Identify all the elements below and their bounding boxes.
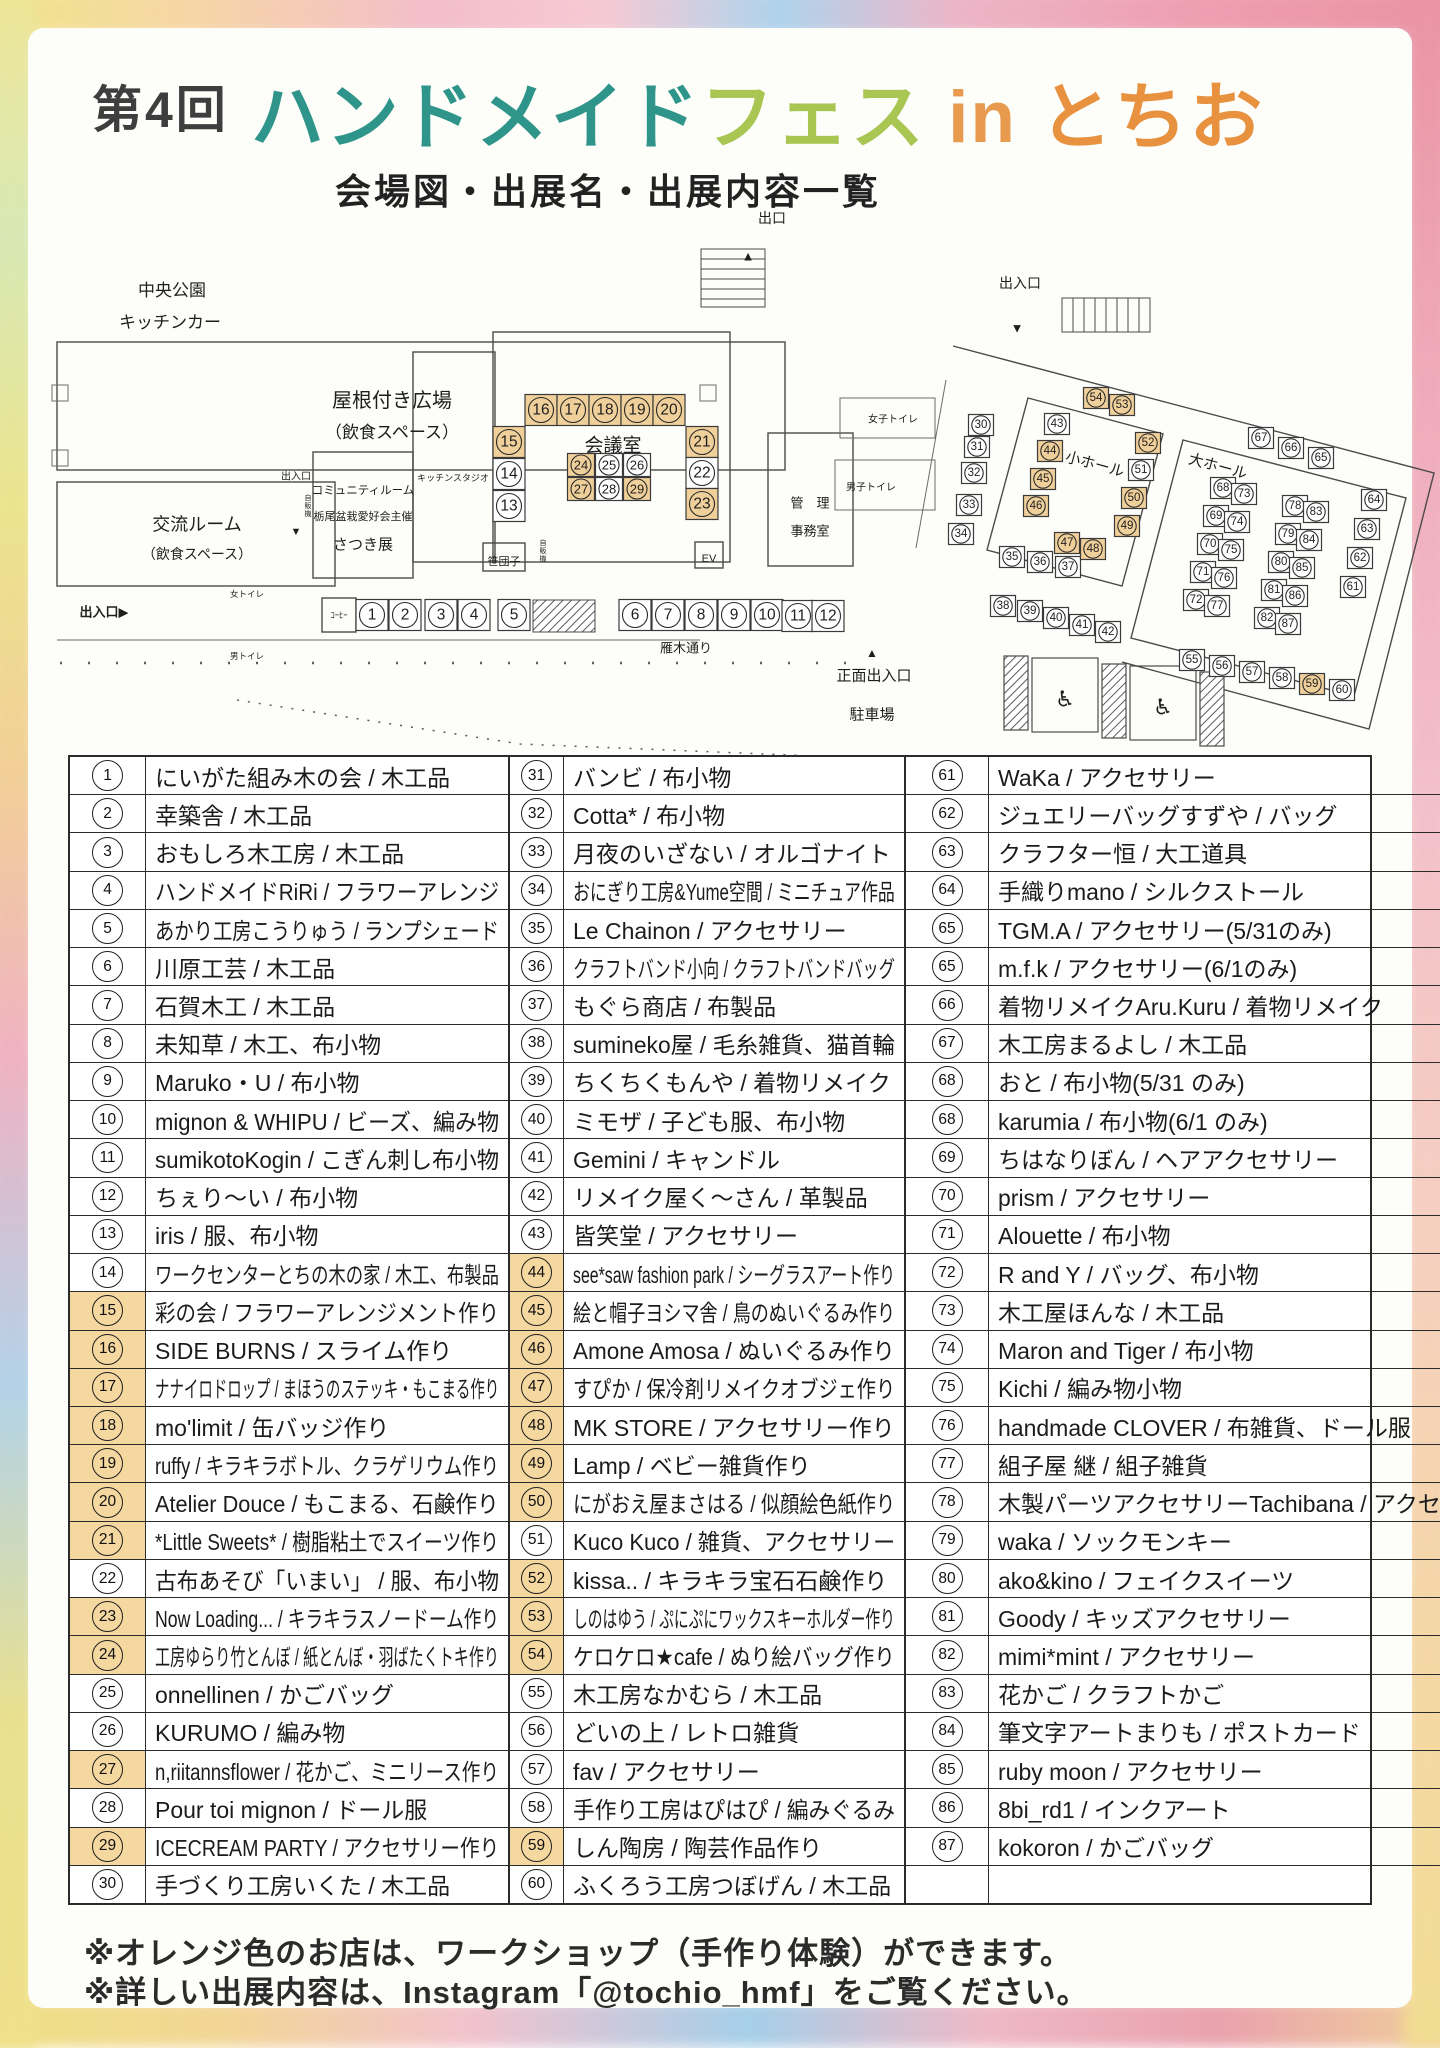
- booth-entry-text: 未知草 / 木工、布小物: [155, 1026, 381, 1060]
- booth-number-cell: 66: [906, 986, 989, 1023]
- booth-entry: MK STORE / アクセサリー作り: [564, 1407, 904, 1444]
- map-booth-7: 7: [652, 600, 684, 631]
- booth-number: 32: [521, 798, 552, 829]
- booth-entry: 工房ゆらり竹とんぼ / 紙とんぼ・羽ばたくトキ作り: [146, 1636, 508, 1673]
- booth-entry-text: Maron and Tiger / 布小物: [998, 1332, 1254, 1366]
- table-row: 74Maron and Tiger / 布小物: [906, 1330, 1440, 1368]
- svg-text:19: 19: [628, 402, 645, 419]
- booth-entry-text: sumikotoKogin / こぎん刺し布小物: [155, 1141, 499, 1175]
- map-label: ▲: [866, 646, 878, 660]
- booth-entry: しのはゆう / ぷにぷにワックスキーホルダー作り: [564, 1598, 904, 1635]
- booth-number-cell: 84: [906, 1713, 989, 1750]
- booth-number: 42: [521, 1181, 552, 1212]
- map-labels: 中央公園キッチンカー屋根付き広場（飲食スペース）交流ルーム（飲食スペース）出入口…: [80, 210, 1249, 723]
- booth-entry: prism / アクセサリー: [989, 1178, 1440, 1215]
- booth-entry-text: MK STORE / アクセサリー作り: [573, 1409, 895, 1443]
- table-row: 40ミモザ / 子ども服、布小物: [510, 1100, 904, 1138]
- booth-number: 48: [521, 1410, 552, 1441]
- svg-text:73: 73: [1238, 488, 1251, 500]
- svg-text:53: 53: [1116, 399, 1129, 411]
- booth-number: 87: [932, 1831, 963, 1862]
- map-booth-84: 84: [1297, 530, 1322, 551]
- booth-number-cell: [906, 1866, 989, 1903]
- booth-entry-text: 着物リメイクAru.Kuru / 着物リメイク: [998, 988, 1383, 1022]
- map-booth-1: 1: [356, 600, 388, 631]
- booth-entry: 手作り工房はぴはぴ / 編みぐるみ: [564, 1789, 904, 1826]
- table-row: 5あかり工房こうりゅう / ランプシェード: [70, 909, 508, 947]
- booth-entry: *Little Sweets* / 樹脂粘土でスイーツ作り: [146, 1522, 508, 1559]
- table-row: 29ICECREAM PARTY / アクセサリー作り: [70, 1827, 508, 1865]
- table-row: 62ジュエリーバッグすずや / バッグ: [906, 794, 1440, 832]
- table-row: 49Lamp / ベビー雑貨作り: [510, 1444, 904, 1482]
- booth-number: 64: [932, 875, 963, 906]
- table-row: 4ハンドメイドRiRi / フラワーアレンジ: [70, 871, 508, 909]
- booth-entry-text: ハンドメイドRiRi / フラワーアレンジ: [155, 873, 499, 907]
- table-row: 77組子屋 継 / 組子雑貨: [906, 1444, 1440, 1482]
- svg-text:30: 30: [975, 419, 988, 431]
- booth-number: 72: [932, 1257, 963, 1288]
- booth-number-cell: 53: [510, 1598, 564, 1635]
- booth-entry: おもしろ木工房 / 木工品: [146, 833, 508, 870]
- booth-entry-text: *Little Sweets* / 樹脂粘土でスイーツ作り: [155, 1523, 499, 1557]
- map-label: 男トイレ: [230, 651, 264, 661]
- booth-entry: 木製パーツアクセサリーTachibana / アクセサリー: [989, 1483, 1440, 1520]
- booth-entry-text: see*saw fashion park / シーグラスアート作り: [573, 1256, 895, 1290]
- booth-entry: m.f.k / アクセサリー(6/1のみ): [989, 948, 1440, 985]
- map-booth-62: 62: [1348, 548, 1373, 569]
- map-booth-39: 39: [1018, 601, 1043, 622]
- booth-number-cell: 49: [510, 1445, 564, 1482]
- map-booth-17: 17: [557, 395, 589, 426]
- booth-number: 57: [521, 1754, 552, 1785]
- svg-text:6: 6: [631, 607, 640, 624]
- booth-entry: すぴか / 保冷剤リメイクオブジェ作り: [564, 1369, 904, 1406]
- table-row: 1にいがた組み木の会 / 木工品: [70, 757, 508, 794]
- booth-number-cell: 44: [510, 1254, 564, 1291]
- booth-number: 34: [521, 875, 552, 906]
- table-row: 73木工屋ほんな / 木工品: [906, 1291, 1440, 1329]
- booth-number: 76: [932, 1410, 963, 1441]
- booth-entry-text: 組子屋 継 / 組子雑貨: [998, 1447, 1208, 1481]
- booth-entry: ruby moon / アクセサリー: [989, 1751, 1440, 1788]
- booth-entry: mignon & WHIPU / ビーズ、編み物: [146, 1101, 508, 1138]
- map-label: キッチンカー: [119, 313, 221, 332]
- booth-entry: [989, 1866, 1440, 1903]
- booth-number-cell: 58: [510, 1789, 564, 1826]
- booth-number-cell: 56: [510, 1713, 564, 1750]
- table-row: 87kokoron / かごバッグ: [906, 1827, 1440, 1865]
- svg-text:62: 62: [1354, 552, 1367, 564]
- map-label: さつき展: [333, 536, 393, 553]
- map-booth-16: 16: [525, 395, 557, 426]
- booth-entry: WaKa / アクセサリー: [989, 757, 1440, 794]
- booth-entry-text: ケロケロ★cafe / ぬり絵バッグ作り: [573, 1638, 895, 1672]
- booth-number-cell: 19: [70, 1445, 146, 1482]
- svg-text:43: 43: [1051, 418, 1064, 430]
- booth-number: 81: [932, 1601, 963, 1632]
- svg-text:7: 7: [664, 607, 673, 624]
- booth-entry-text: SIDE BURNS / スライム作り: [155, 1332, 452, 1366]
- booth-entry: Cotta* / 布小物: [564, 795, 904, 832]
- booth-entry-text: prism / アクセサリー: [998, 1179, 1210, 1213]
- booth-number-cell: 83: [906, 1675, 989, 1712]
- booth-entry-text: karumia / 布小物(6/1 のみ): [998, 1103, 1268, 1137]
- svg-text:8: 8: [697, 607, 706, 624]
- map-booth-61: 61: [1341, 577, 1366, 598]
- map-booth-63: 63: [1355, 519, 1380, 540]
- table-row: 67木工房まるよし / 木工品: [906, 1024, 1440, 1062]
- svg-text:37: 37: [1062, 561, 1075, 573]
- svg-text:55: 55: [1186, 654, 1199, 666]
- booth-number-cell: 29: [70, 1828, 146, 1865]
- booth-entry-text: ICECREAM PARTY / アクセサリー作り: [155, 1829, 499, 1863]
- map-label: 管 理: [790, 496, 829, 511]
- svg-text:4: 4: [470, 607, 479, 624]
- booth-number-cell: 33: [510, 833, 564, 870]
- table-row: 56どいの上 / レトロ雑貨: [510, 1712, 904, 1750]
- booth-number: 62: [932, 798, 963, 829]
- booth-number-cell: 80: [906, 1560, 989, 1597]
- map-booth-19: 19: [621, 395, 653, 426]
- table-row: 7石賀木工 / 木工品: [70, 985, 508, 1023]
- booth-number: 79: [932, 1525, 963, 1556]
- svg-text:66: 66: [1285, 442, 1298, 454]
- booth-number-cell: 17: [70, 1369, 146, 1406]
- map-booth-10: 10: [751, 600, 783, 631]
- table-row: 85ruby moon / アクセサリー: [906, 1750, 1440, 1788]
- booth-number-cell: 45: [510, 1292, 564, 1329]
- booth-entry: Alouette / 布小物: [989, 1216, 1440, 1253]
- booth-entry: karumia / 布小物(6/1 のみ): [989, 1101, 1440, 1138]
- svg-text:45: 45: [1037, 473, 1050, 485]
- booth-number: 8: [92, 1028, 123, 1059]
- booth-entry-text: fav / アクセサリー: [573, 1753, 760, 1787]
- booth-number-cell: 36: [510, 948, 564, 985]
- booth-entry-text: ワークセンターとちの木の家 / 木工、布製品: [155, 1256, 499, 1290]
- table-row: 50にがおえ屋まさはる / 似顔絵色紙作り: [510, 1482, 904, 1520]
- stairs-icon: [533, 600, 595, 632]
- booth-entry-text: kokoron / かごバッグ: [998, 1829, 1214, 1863]
- map-booth-73: 73: [1232, 484, 1257, 505]
- booth-entry-text: KURUMO / 編み物: [155, 1714, 345, 1748]
- booth-number-cell: 86: [906, 1789, 989, 1826]
- booth-number-cell: 39: [510, 1063, 564, 1100]
- booth-entry: sumineko屋 / 毛糸雑貨、猫首輪: [564, 1025, 904, 1062]
- booth-entry-text: リメイク屋く～さん / 革製品: [573, 1179, 868, 1213]
- svg-text:35: 35: [1006, 551, 1019, 563]
- booth-number: 13: [92, 1219, 123, 1250]
- booth-number: 20: [92, 1487, 123, 1518]
- svg-text:27: 27: [574, 482, 588, 497]
- booth-entry: sumikotoKogin / こぎん刺し布小物: [146, 1139, 508, 1176]
- booth-entry: 手織りmano / シルクストール: [989, 872, 1440, 909]
- table-row: 46Amone Amosa / ぬいぐるみ作り: [510, 1330, 904, 1368]
- booth-entry: ふくろう工房つぼげん / 木工品: [564, 1866, 904, 1903]
- booth-entry: Amone Amosa / ぬいぐるみ作り: [564, 1331, 904, 1368]
- svg-text:48: 48: [1087, 543, 1100, 555]
- map-label: 男子トイレ: [846, 482, 896, 494]
- booth-entry: ケロケロ★cafe / ぬり絵バッグ作り: [564, 1636, 904, 1673]
- booth-number-cell: 13: [70, 1216, 146, 1253]
- table-row: 82mimi*mint / アクセサリー: [906, 1635, 1440, 1673]
- booth-entry-text: n,riitannsflower / 花かご、ミニリース作り: [155, 1753, 499, 1787]
- svg-text:52: 52: [1142, 437, 1155, 449]
- floor-plan: 1234567891011121314151617181920212223242…: [0, 190, 1440, 770]
- booth-entry: ちくちくもんや / 着物リメイク: [564, 1063, 904, 1100]
- booth-number-cell: 28: [70, 1789, 146, 1826]
- booth-entry-text: ジュエリーバッグすずや / バッグ: [998, 797, 1337, 831]
- map-booth-74: 74: [1225, 512, 1250, 533]
- map-booth-31: 31: [965, 437, 990, 458]
- svg-text:39: 39: [1024, 605, 1037, 617]
- table-row: 34おにぎり工房&Yume空間 / ミニチュア作品: [510, 871, 904, 909]
- booth-entry: 組子屋 継 / 組子雑貨: [989, 1445, 1440, 1482]
- title-main: ハンドメイドフェス in とちお: [251, 81, 1264, 154]
- map-booth-15: 15: [493, 427, 525, 458]
- booth-entry: ミモザ / 子ども服、布小物: [564, 1101, 904, 1138]
- svg-text:34: 34: [955, 528, 968, 540]
- table-row: 68karumia / 布小物(6/1 のみ): [906, 1100, 1440, 1138]
- table-row: 68おと / 布小物(5/31 のみ): [906, 1062, 1440, 1100]
- map-booth-12: 12: [812, 601, 844, 632]
- booth-number: 27: [92, 1754, 123, 1785]
- map-label: 出口: [758, 210, 786, 226]
- title-part-tochio: とちお: [1039, 77, 1264, 158]
- booth-number: 68: [932, 1066, 963, 1097]
- booth-entry: ワークセンターとちの木の家 / 木工、布製品: [146, 1254, 508, 1291]
- booth-number: 55: [521, 1678, 552, 1709]
- booth-number: 77: [932, 1448, 963, 1479]
- map-booth-27: 27: [568, 478, 595, 501]
- booth-number-cell: 22: [70, 1560, 146, 1597]
- table-row: 21*Little Sweets* / 樹脂粘土でスイーツ作り: [70, 1521, 508, 1559]
- booth-number-cell: 75: [906, 1369, 989, 1406]
- map-label: ▼: [1011, 321, 1024, 336]
- map-label: 笹団子: [488, 555, 521, 568]
- booth-entry-text: kissa.. / キラキラ宝石石鹸作り: [573, 1562, 887, 1596]
- booth-number: 11: [92, 1142, 123, 1173]
- booth-entry: Goody / キッズアクセサリー: [989, 1598, 1440, 1635]
- map-label: ▼: [291, 526, 302, 538]
- booth-entry: fav / アクセサリー: [564, 1751, 904, 1788]
- booth-entry: kissa.. / キラキラ宝石石鹸作り: [564, 1560, 904, 1597]
- svg-text:60: 60: [1336, 684, 1349, 696]
- svg-text:71: 71: [1197, 566, 1210, 578]
- booth-entry: Lamp / ベビー雑貨作り: [564, 1445, 904, 1482]
- booth-entry: 花かご / クラフトかご: [989, 1675, 1440, 1712]
- title-edition: 第4回: [92, 70, 229, 154]
- booth-number: 59: [521, 1831, 552, 1862]
- table-row: 65TGM.A / アクセサリー(5/31のみ): [906, 909, 1440, 947]
- booth-number-cell: 20: [70, 1483, 146, 1520]
- map-booth-8: 8: [685, 600, 717, 631]
- table-row: 22古布あそび「いまい」 / 服、布小物: [70, 1559, 508, 1597]
- booth-entry: Pour toi mignon / ドール服: [146, 1789, 508, 1826]
- map-booth-9: 9: [718, 600, 750, 631]
- booth-entry-text: 手作り工房はぴはぴ / 編みぐるみ: [573, 1791, 895, 1825]
- note-instagram: ※詳しい出展内容は、Instagram「@tochio_hmf」をご覧ください。: [84, 1973, 1089, 2012]
- booth-entry-text: Maruko・U / 布小物: [155, 1064, 359, 1098]
- booth-number-cell: 82: [906, 1636, 989, 1673]
- booth-number: 7: [92, 990, 123, 1021]
- booth-number-cell: 61: [906, 757, 989, 794]
- svg-text:9: 9: [730, 607, 739, 624]
- map-booth-33: 33: [957, 495, 982, 516]
- booth-number: 52: [521, 1563, 552, 1594]
- map-label: ▲: [742, 249, 755, 264]
- map-label: （飲食スペース）: [142, 546, 252, 562]
- svg-text:79: 79: [1282, 528, 1295, 540]
- table-row: 19ruffy / キラキラボトル、クラゲリウム作り: [70, 1444, 508, 1482]
- booth-entry-text: ちくちくもんや / 着物リメイク: [573, 1064, 891, 1098]
- booth-number-cell: 78: [906, 1483, 989, 1520]
- svg-text:72: 72: [1190, 594, 1203, 606]
- table-row: 37もぐら商店 / 布製品: [510, 985, 904, 1023]
- table-row: 868bi_rd1 / インクアート: [906, 1788, 1440, 1826]
- map-booth-75: 75: [1219, 540, 1244, 561]
- svg-text:40: 40: [1050, 612, 1063, 624]
- booth-number: 1: [92, 760, 123, 791]
- table-row: 11sumikotoKogin / こぎん刺し布小物: [70, 1138, 508, 1176]
- booth-entry-text: mimi*mint / アクセサリー: [998, 1638, 1255, 1672]
- booth-number: 51: [521, 1525, 552, 1556]
- booth-entry: 絵と帽子ヨシマ舎 / 鳥のぬいぐるみ作り: [564, 1292, 904, 1329]
- map-booth-20: 20: [653, 395, 685, 426]
- table-row: 25onnellinen / かごバッグ: [70, 1674, 508, 1712]
- booth-entry: クラフトバンド小向 / クラフトバンドバッグ: [564, 948, 904, 985]
- booth-number-cell: 11: [70, 1139, 146, 1176]
- booth-entry: バンビ / 布小物: [564, 757, 904, 794]
- svg-text:12: 12: [819, 608, 836, 625]
- booth-number: 49: [521, 1448, 552, 1479]
- booth-entry-text: にいがた組み木の会 / 木工品: [155, 759, 450, 793]
- booth-number: 17: [92, 1372, 123, 1403]
- booth-number: 40: [521, 1104, 552, 1135]
- table-row: 71Alouette / 布小物: [906, 1215, 1440, 1253]
- booth-entry-text: 8bi_rd1 / インクアート: [998, 1791, 1231, 1825]
- map-booth-86: 86: [1283, 586, 1308, 607]
- booth-number: 86: [932, 1792, 963, 1823]
- map-label: 出入口: [999, 275, 1041, 291]
- booth-number: 9: [92, 1066, 123, 1097]
- booth-number-cell: 62: [906, 795, 989, 832]
- svg-text:61: 61: [1347, 581, 1360, 593]
- booth-number: 65: [932, 951, 963, 982]
- booth-number: 70: [932, 1181, 963, 1212]
- booth-number: 50: [521, 1487, 552, 1518]
- booth-number: 63: [932, 837, 963, 868]
- table-row: 32Cotta* / 布小物: [510, 794, 904, 832]
- title-part-in: in: [926, 77, 1039, 158]
- booth-entry-text: 古布あそび「いまい」 / 服、布小物: [155, 1562, 499, 1596]
- booth-number: 5: [92, 913, 123, 944]
- table-row: 24工房ゆらり竹とんぼ / 紙とんぼ・羽ばたくトキ作り: [70, 1635, 508, 1673]
- booth-entry-text: ミモザ / 子ども服、布小物: [573, 1103, 845, 1137]
- booth-number: 71: [932, 1219, 963, 1250]
- booth-entry-text: Kuco Kuco / 雑貨、アクセサリー: [573, 1523, 895, 1557]
- booth-number: 31: [521, 760, 552, 791]
- booth-entry-text: ちはなりぼん / ヘアアクセサリー: [998, 1141, 1338, 1175]
- map-booth-40: 40: [1044, 608, 1069, 629]
- map-booth-60: 60: [1330, 680, 1355, 701]
- table-row: 80ako&kino / フェイクスイーツ: [906, 1559, 1440, 1597]
- booth-entry: 幸築舎 / 木工品: [146, 795, 508, 832]
- booth-number: 35: [521, 913, 552, 944]
- svg-text:2: 2: [401, 607, 410, 624]
- booth-entry: Atelier Douce / もこまる、石鹸作り: [146, 1483, 508, 1520]
- booth-entry-text: バンビ / 布小物: [573, 759, 731, 793]
- svg-text:25: 25: [602, 458, 616, 473]
- map-booth-30: 30: [969, 415, 994, 436]
- booth-number: 44: [521, 1257, 552, 1288]
- title-part-handmade: ハンドメイド: [251, 77, 701, 158]
- booth-number-cell: 55: [510, 1675, 564, 1712]
- table-row: 15彩の会 / フラワーアレンジメント作り: [70, 1291, 508, 1329]
- booth-entry-text: 川原工芸 / 木工品: [155, 950, 335, 984]
- booth-number-cell: 26: [70, 1713, 146, 1750]
- booth-entry-text: 石賀木工 / 木工品: [155, 988, 335, 1022]
- booth-number: 65: [932, 913, 963, 944]
- booth-entry: TGM.A / アクセサリー(5/31のみ): [989, 910, 1440, 947]
- map-label: 自販機: [305, 493, 312, 518]
- booth-number-cell: 85: [906, 1751, 989, 1788]
- booth-entry-text: 木工屋ほんな / 木工品: [998, 1294, 1224, 1328]
- booth-entry: 木工房まるよし / 木工品: [989, 1025, 1440, 1062]
- booth-entry: 手づくり工房いくた / 木工品: [146, 1866, 508, 1903]
- booth-number-cell: 59: [510, 1828, 564, 1865]
- booth-entry-text: mo'limit / 缶バッジ作り: [155, 1409, 389, 1443]
- booth-number: 4: [92, 875, 123, 906]
- map-booth-28: 28: [596, 478, 623, 501]
- table-row: 6川原工芸 / 木工品: [70, 947, 508, 985]
- map-label: EV: [702, 553, 717, 565]
- booth-number: 46: [521, 1334, 552, 1365]
- booth-entry: 古布あそび「いまい」 / 服、布小物: [146, 1560, 508, 1597]
- table-row: [906, 1865, 1440, 1903]
- booth-number: 22: [92, 1563, 123, 1594]
- booth-number: 74: [932, 1334, 963, 1365]
- booth-entry-text: 手織りmano / シルクストール: [998, 873, 1304, 907]
- stairs-icon: [1062, 298, 1150, 332]
- booth-entry-text: Gemini / キャンドル: [573, 1141, 780, 1175]
- booth-number: 14: [92, 1257, 123, 1288]
- svg-text:26: 26: [630, 458, 644, 473]
- booth-number-cell: 31: [510, 757, 564, 794]
- table-row: 44see*saw fashion park / シーグラスアート作り: [510, 1253, 904, 1291]
- svg-text:21: 21: [693, 434, 710, 451]
- map-booth-21: 21: [686, 427, 718, 458]
- booth-number-cell: 77: [906, 1445, 989, 1482]
- map-booth-46: 46: [1024, 496, 1049, 517]
- table-row: 27n,riitannsflower / 花かご、ミニリース作り: [70, 1750, 508, 1788]
- booth-entry: どいの上 / レトロ雑貨: [564, 1713, 904, 1750]
- title-part-fes: フェス: [701, 77, 926, 158]
- svg-text:49: 49: [1121, 520, 1134, 532]
- booth-entry: ruffy / キラキラボトル、クラゲリウム作り: [146, 1445, 508, 1482]
- booth-entry-text: どいの上 / レトロ雑貨: [573, 1714, 799, 1748]
- booth-entry-text: Atelier Douce / もこまる、石鹸作り: [155, 1485, 499, 1519]
- svg-text:24: 24: [574, 458, 588, 473]
- booth-number: 30: [92, 1869, 123, 1900]
- booth-entry-text: Now Loading... / キラキラスノードーム作り: [155, 1600, 499, 1634]
- svg-text:70: 70: [1204, 538, 1217, 550]
- booth-number-cell: 7: [70, 986, 146, 1023]
- booth-entry: ちぇり～い / 布小物: [146, 1178, 508, 1215]
- map-booth-65: 65: [1309, 448, 1334, 469]
- booth-number: 85: [932, 1754, 963, 1785]
- booth-entry: Le Chainon / アクセサリー: [564, 910, 904, 947]
- table-row: 54ケロケロ★cafe / ぬり絵バッグ作り: [510, 1635, 904, 1673]
